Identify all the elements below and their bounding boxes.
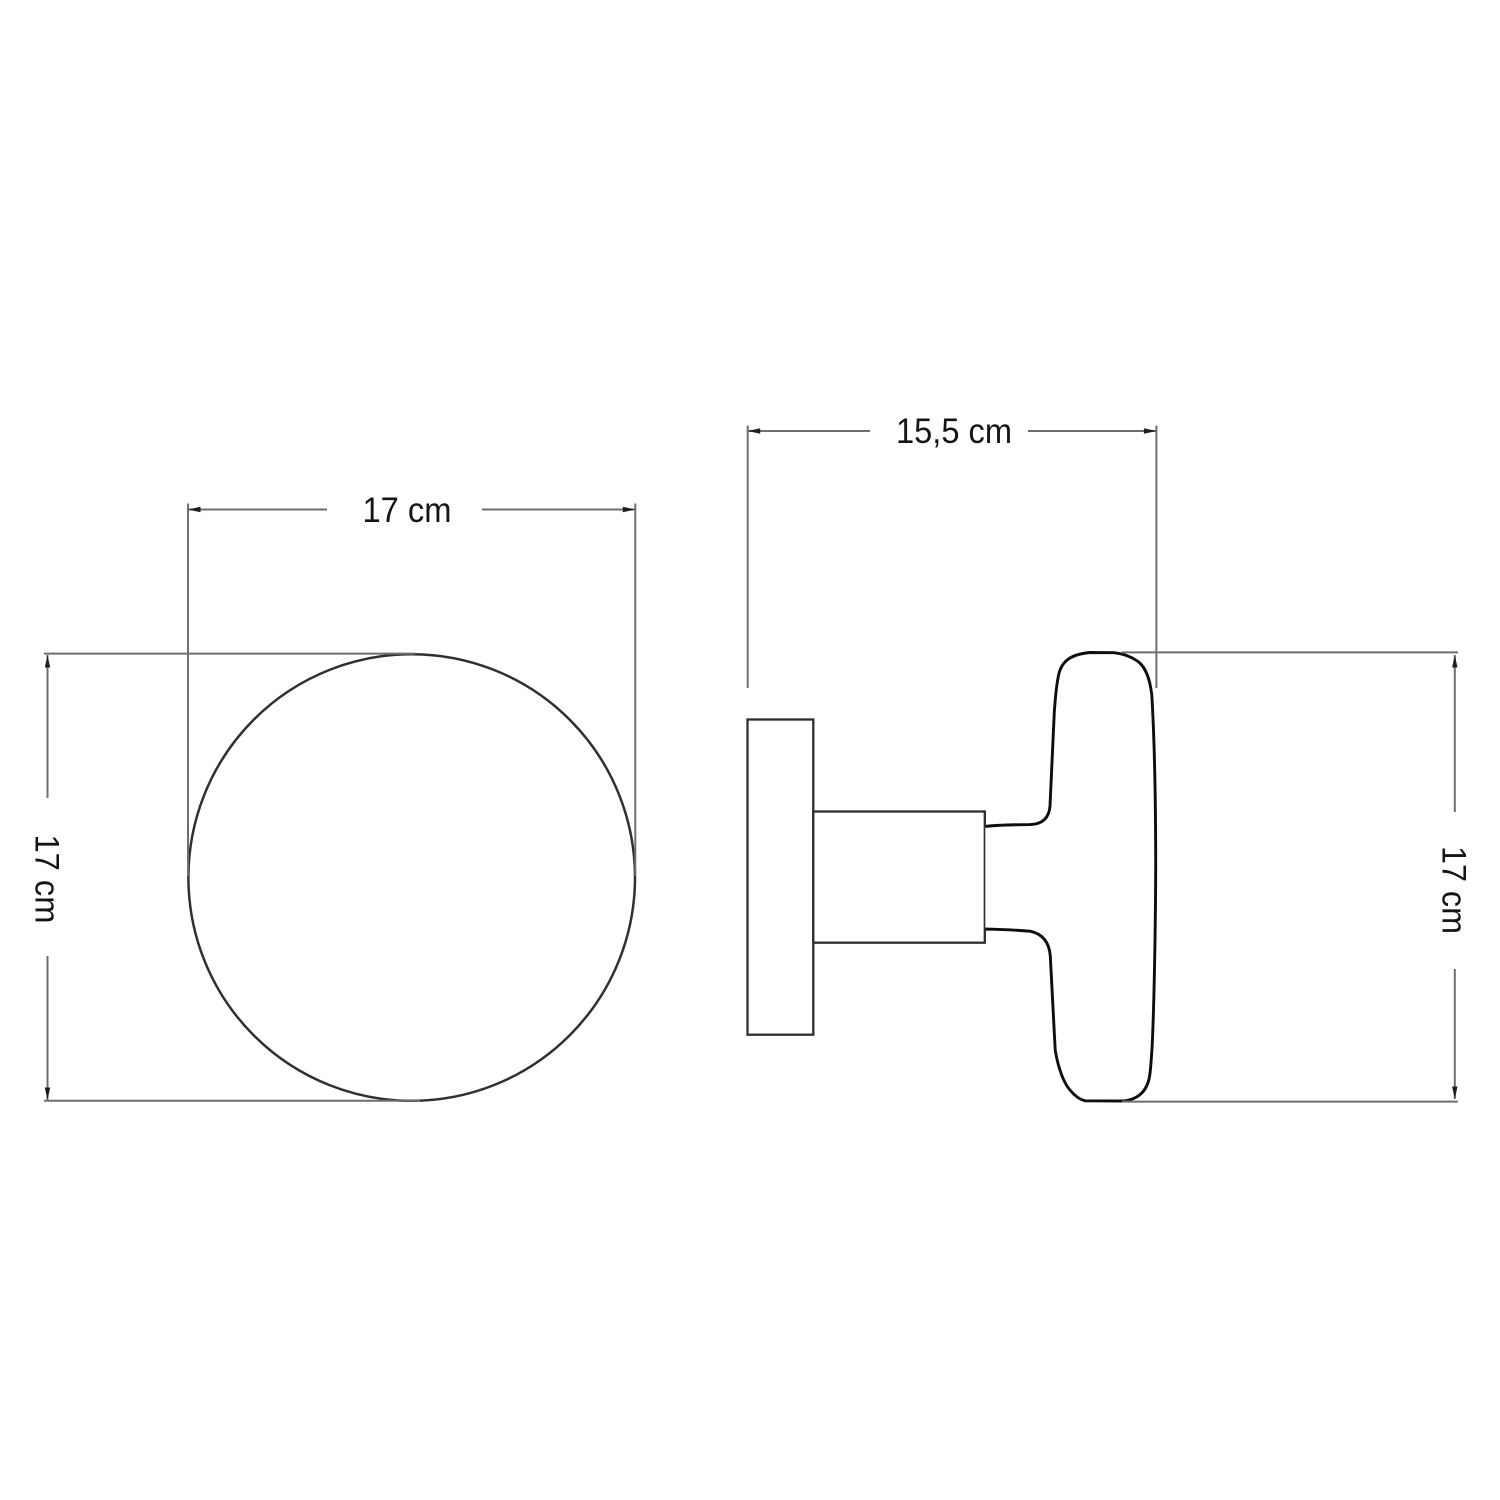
svg-text:17 cm: 17 cm (28, 835, 66, 924)
svg-text:17 cm: 17 cm (363, 490, 452, 530)
svg-text:15,5 cm: 15,5 cm (896, 411, 1012, 451)
svg-text:17 cm: 17 cm (1435, 846, 1473, 934)
